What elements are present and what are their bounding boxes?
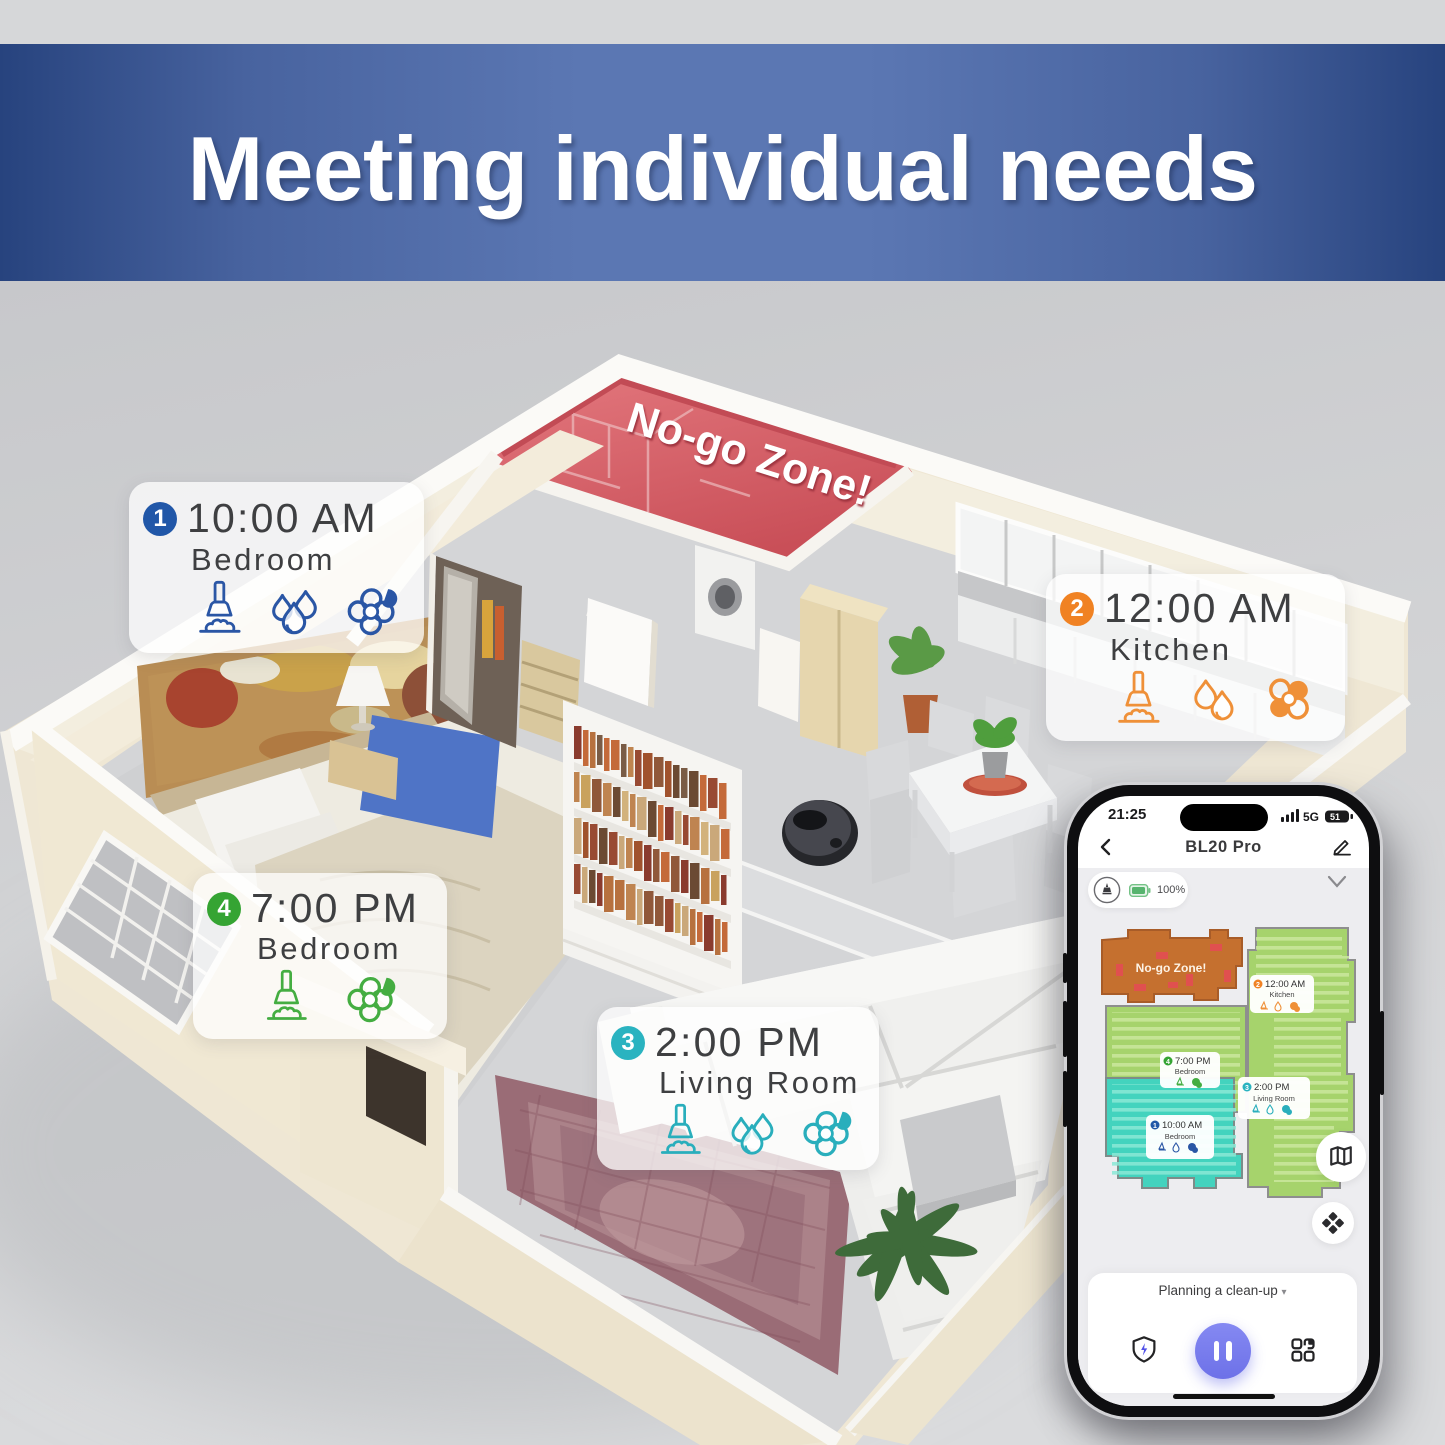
svg-text:Bedroom: Bedroom (1165, 1132, 1195, 1141)
svg-text:3: 3 (1245, 1085, 1249, 1092)
svg-text:Kitchen: Kitchen (1269, 990, 1294, 999)
svg-text:No-go Zone!: No-go Zone! (1136, 961, 1207, 975)
svg-text:4: 4 (1166, 1059, 1170, 1066)
svg-text:Living Room: Living Room (1253, 1094, 1295, 1103)
svg-text:1: 1 (1153, 1123, 1157, 1130)
svg-text:5G: 5G (1303, 810, 1319, 824)
svg-text:51: 51 (1330, 812, 1340, 822)
svg-text:12:00 AM: 12:00 AM (1265, 979, 1305, 990)
svg-text:10:00 AM: 10:00 AM (1162, 1120, 1202, 1131)
svg-text:2:00 PM: 2:00 PM (1254, 1082, 1289, 1093)
svg-text:7:00 PM: 7:00 PM (1175, 1056, 1210, 1067)
svg-text:2: 2 (1256, 982, 1260, 989)
svg-text:Bedroom: Bedroom (1175, 1067, 1205, 1076)
